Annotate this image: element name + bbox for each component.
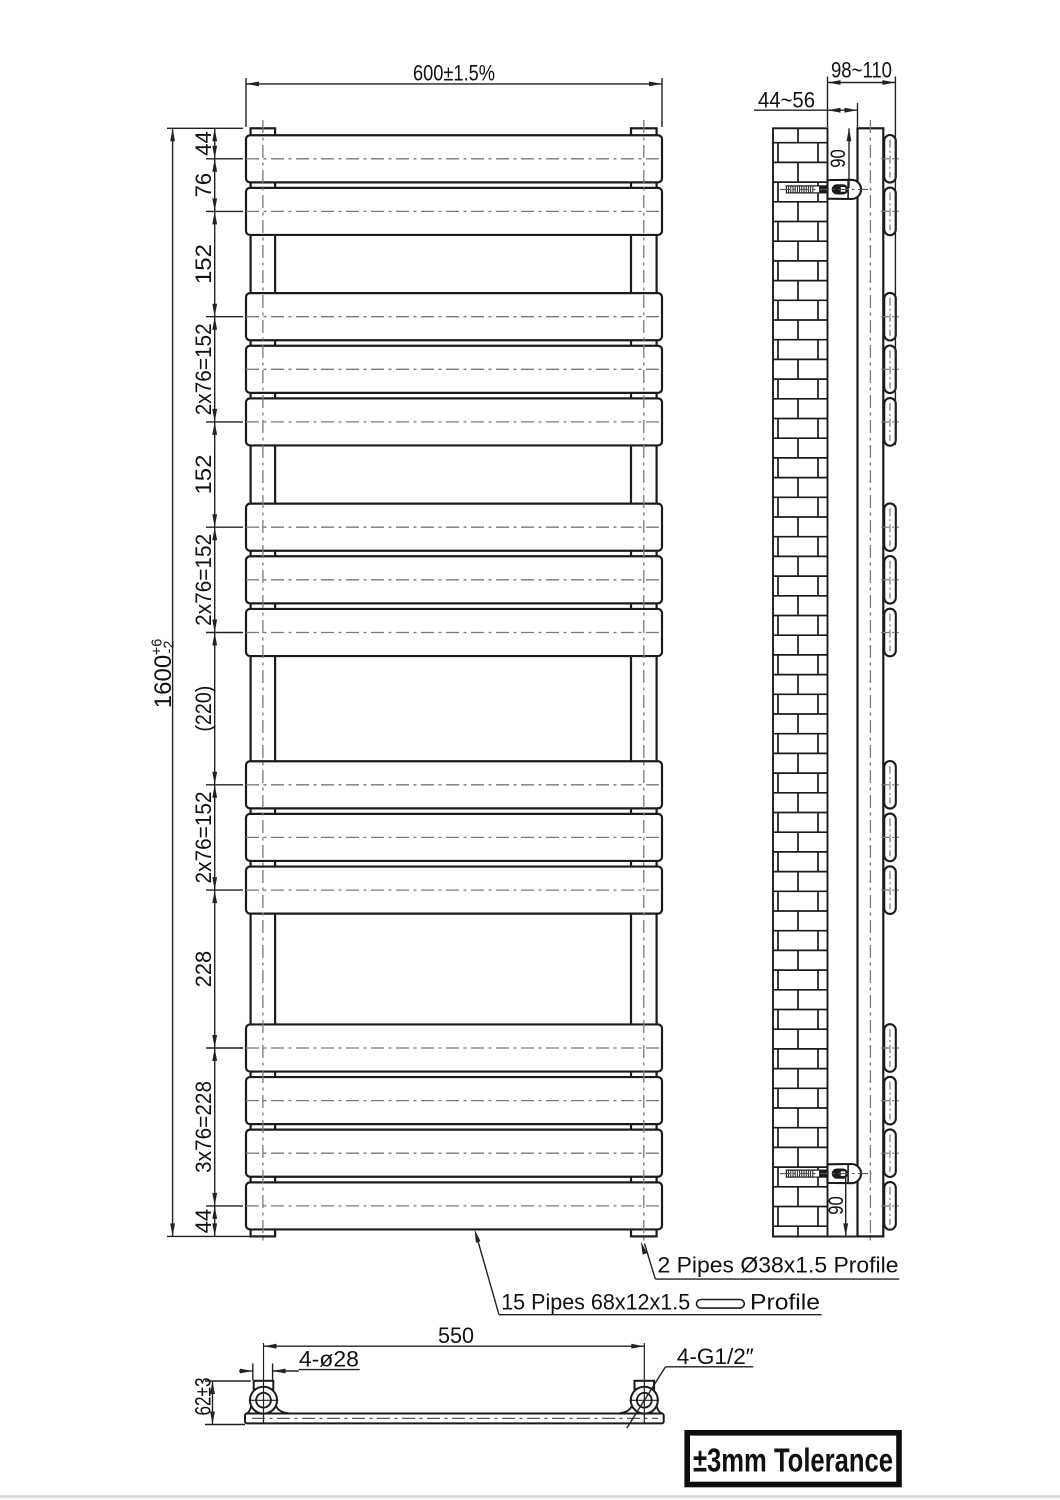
svg-text:(220): (220) [191, 686, 216, 732]
svg-text:Profile: Profile [750, 1289, 820, 1314]
svg-text:600±1.5%: 600±1.5% [413, 61, 495, 86]
svg-text:-2: -2 [162, 641, 178, 654]
svg-text:2x76=152: 2x76=152 [191, 534, 216, 626]
svg-text:62±3: 62±3 [191, 1378, 216, 1416]
svg-text:90: 90 [825, 1196, 848, 1215]
svg-text:2 Pipes Ø38x1.5 Profile: 2 Pipes Ø38x1.5 Profile [658, 1253, 899, 1278]
svg-text:44~56: 44~56 [758, 88, 815, 113]
svg-text:228: 228 [191, 951, 216, 988]
svg-text:15 Pipes 68x12x1.5: 15 Pipes 68x12x1.5 [501, 1289, 690, 1314]
svg-text:90: 90 [827, 149, 850, 168]
svg-text:44: 44 [191, 131, 216, 155]
svg-text:76: 76 [191, 173, 216, 197]
svg-text:550: 550 [438, 1323, 474, 1348]
svg-text:44: 44 [191, 1209, 216, 1233]
svg-text:98~110: 98~110 [831, 58, 892, 83]
svg-text:2x76=152: 2x76=152 [191, 791, 216, 883]
svg-text:4-ø28: 4-ø28 [299, 1347, 359, 1372]
svg-text:152: 152 [191, 244, 216, 284]
svg-text:±3mm Tolerance: ±3mm Tolerance [693, 1442, 893, 1479]
svg-text:152: 152 [191, 455, 216, 495]
svg-text:1600: 1600 [150, 655, 177, 708]
svg-text:3x76=228: 3x76=228 [191, 1081, 216, 1173]
svg-text:2x76=152: 2x76=152 [191, 323, 216, 415]
svg-text:4-G1/2″: 4-G1/2″ [677, 1344, 754, 1369]
